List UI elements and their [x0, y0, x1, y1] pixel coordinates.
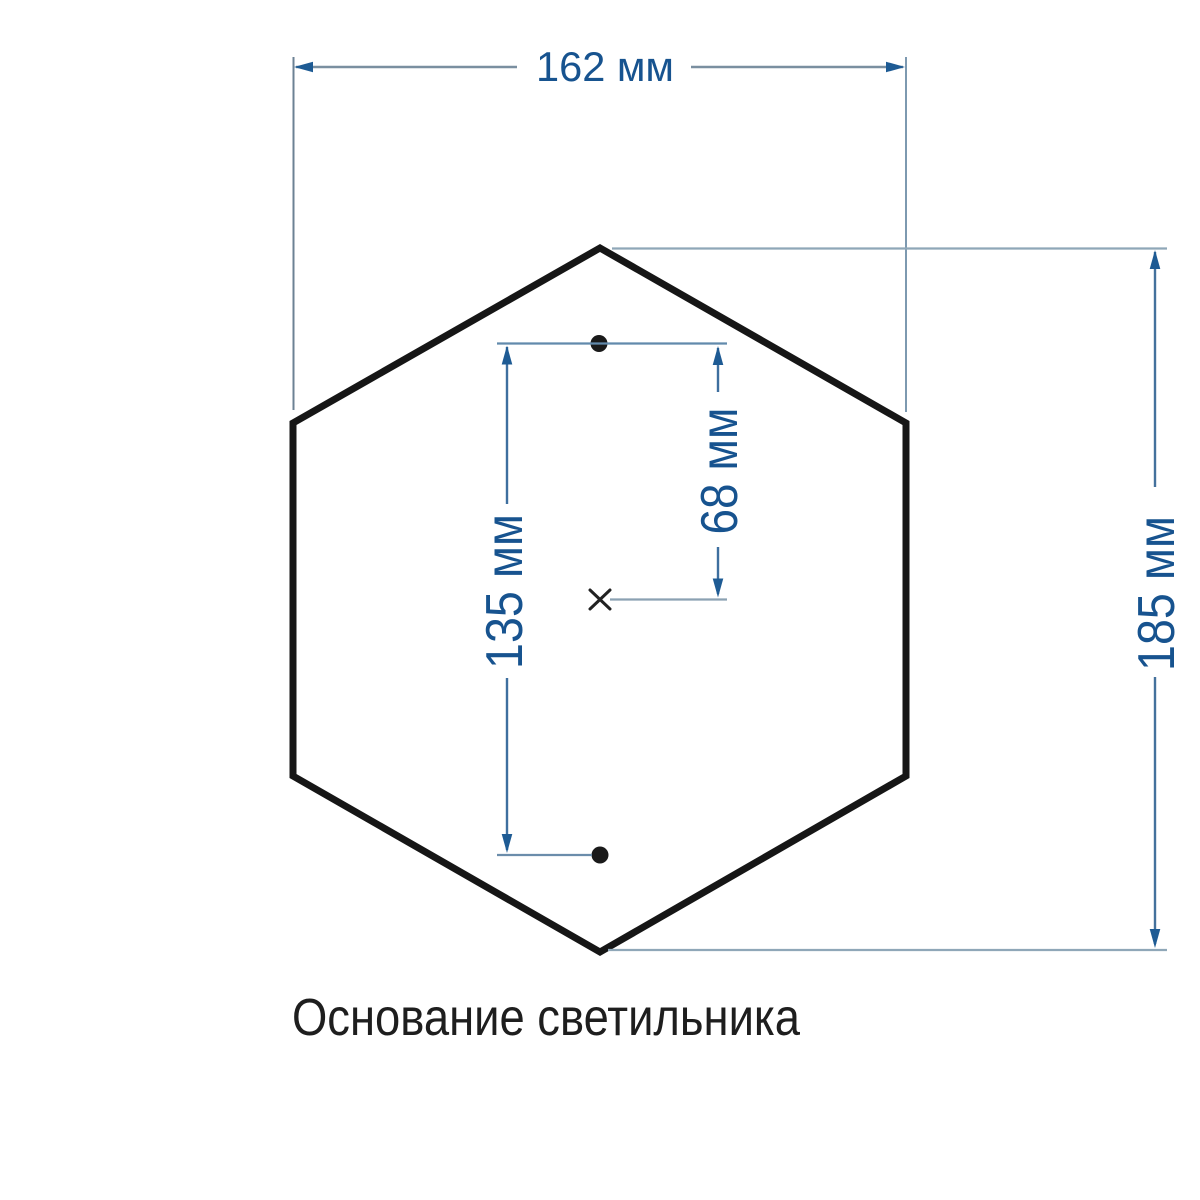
svg-text:68 мм: 68 мм — [691, 408, 749, 535]
svg-text:Основание светильника: Основание светильника — [292, 989, 800, 1047]
svg-text:135 мм: 135 мм — [476, 514, 534, 669]
svg-text:185 мм: 185 мм — [1128, 516, 1186, 671]
svg-text:162 мм: 162 мм — [536, 43, 674, 90]
